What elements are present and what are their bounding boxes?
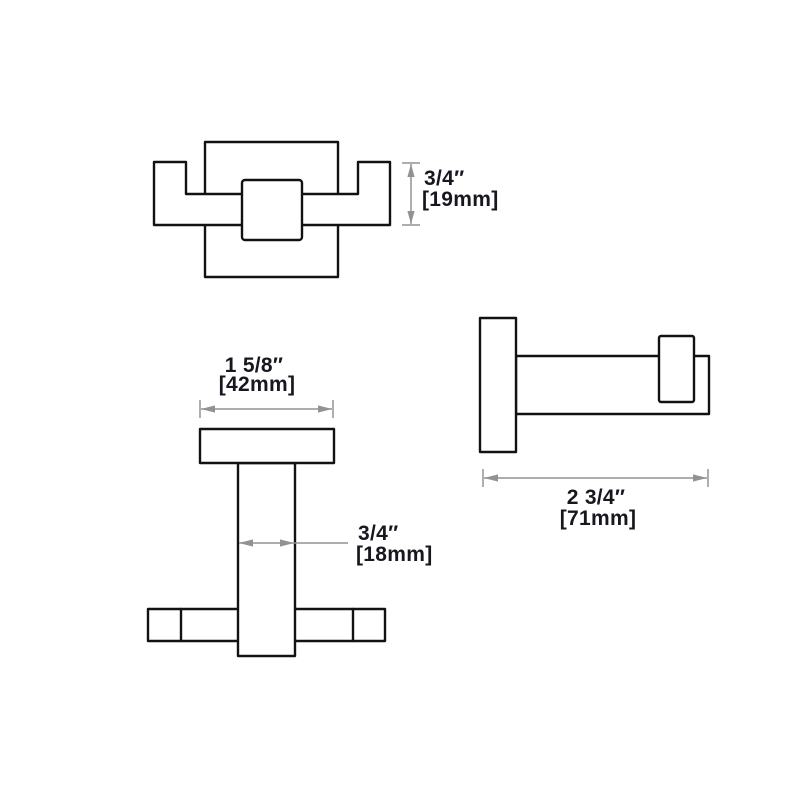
top-depth-mm-label: [19mm] (422, 188, 499, 211)
arrow-up-icon (407, 164, 414, 177)
arrow-left-icon (201, 405, 215, 412)
side-view-wall-plate (480, 318, 516, 452)
front-view-mount-plate (200, 429, 334, 463)
arrow-down-icon (407, 211, 414, 224)
drawing-page: 3/4″ [19mm] 1 5/8″ [42mm] (0, 0, 800, 800)
front-view: 1 5/8″ [42mm] 3/4″ [18m (148, 354, 433, 656)
side-view: 2 3/4″ [71mm] (480, 318, 709, 530)
top-depth-inches-label: 3/4″ (424, 167, 464, 190)
technical-drawing: 3/4″ [19mm] 1 5/8″ [42mm] (0, 0, 800, 800)
front-view-width-dimension: 1 5/8″ [42mm] (200, 354, 333, 418)
front-width-mm-label: [42mm] (219, 373, 296, 396)
arrow-left-icon (484, 474, 498, 481)
front-post-inches-label: 3/4″ (358, 522, 398, 545)
front-post-mm-label: [18mm] (356, 543, 433, 566)
side-projection-mm-label: [71mm] (560, 507, 637, 530)
side-view-hook-tip (659, 336, 694, 402)
top-view-center-post (242, 180, 302, 240)
top-view: 3/4″ [19mm] (154, 142, 499, 277)
front-view-post (238, 463, 295, 656)
side-projection-inches-label: 2 3/4″ (567, 486, 626, 509)
arrow-right-icon (693, 474, 707, 481)
top-view-depth-dimension: 3/4″ [19mm] (402, 163, 499, 225)
side-view-projection-dimension: 2 3/4″ [71mm] (483, 469, 708, 530)
arrow-right-icon (318, 405, 332, 412)
